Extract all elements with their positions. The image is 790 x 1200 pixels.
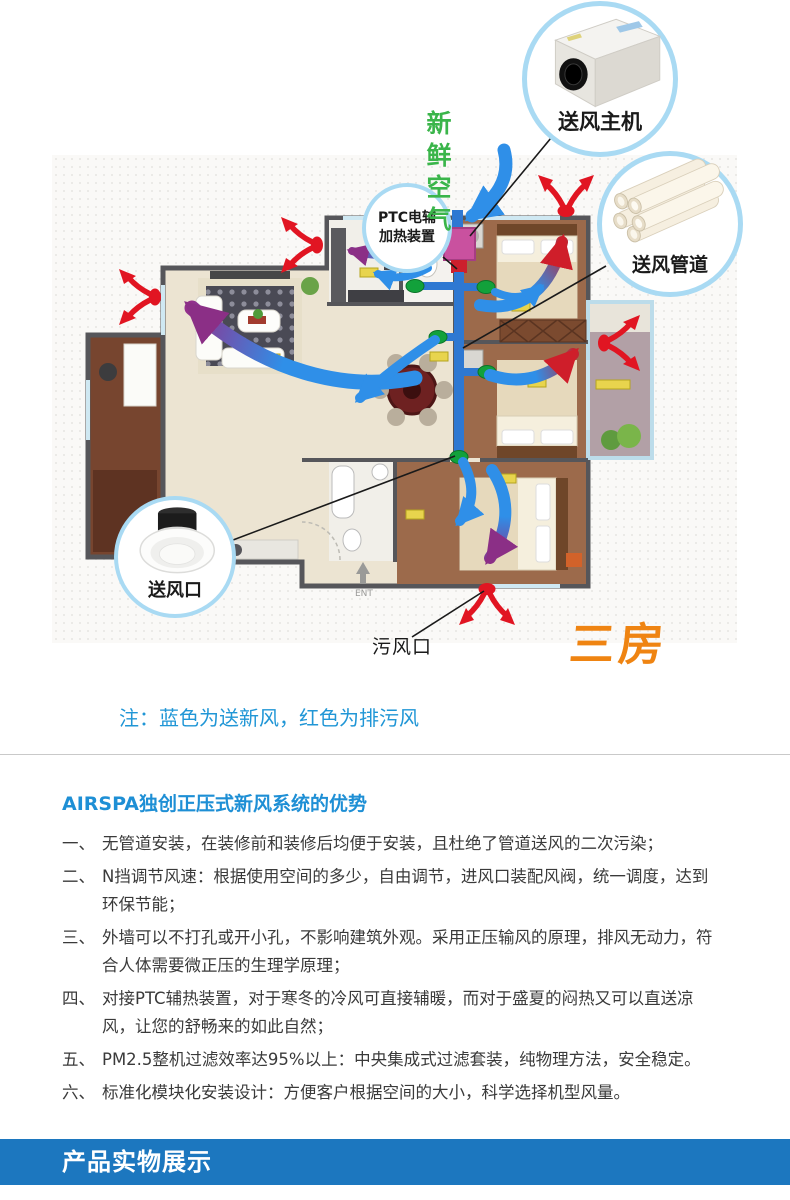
advantage-item: 一、 无管道安装，在装修前和装修后均便于安装，且杜绝了管道送风的二次污染； bbox=[62, 830, 716, 858]
main-unit-image bbox=[527, 6, 673, 120]
callout-main-unit: 送风主机 bbox=[522, 1, 678, 157]
advantage-item: 五、 PM2.5整机过滤效率达95%以上：中央集成式过滤套装，纯物理方法，安全稳… bbox=[62, 1046, 716, 1074]
main-unit-label: 送风主机 bbox=[527, 106, 673, 136]
dirty-outlet-label: 污风口 bbox=[372, 632, 432, 659]
color-legend-note: 注：蓝色为送新风，红色为排污风 bbox=[119, 702, 419, 731]
duct-pipes-image bbox=[602, 156, 738, 262]
section-banner: 产品实物展示 bbox=[0, 1139, 790, 1185]
advantage-item: 四、 对接PTC辅热装置，对于寒冬的冷风可直接辅暖，而对于盛夏的闷热又可以直送凉… bbox=[62, 985, 716, 1041]
advantage-item: 二、 N挡调节风速：根据使用空间的多少，自由调节，进风口装配风阀，统一调度，达到… bbox=[62, 863, 716, 919]
callout-outlet: 送风口 bbox=[114, 496, 236, 618]
fresh-air-label: 新鲜空气 bbox=[421, 110, 453, 260]
advantages-section: AIRSPA独创正压式新风系统的优势 一、 无管道安装，在装修前和装修后均便于安… bbox=[0, 755, 790, 1112]
advantage-item: 六、 标准化模块化安装设计：方便客户根据空间的大小，科学选择机型风量。 bbox=[62, 1079, 716, 1107]
three-rooms-tag: 三房 bbox=[567, 608, 671, 673]
banner-title: 产品实物展示 bbox=[62, 1139, 212, 1185]
entrance-label: ENT bbox=[355, 589, 373, 599]
advantages-title: AIRSPA独创正压式新风系统的优势 bbox=[62, 789, 716, 816]
ventilation-diagram: ENT bbox=[0, 0, 790, 754]
outlet-label: 送风口 bbox=[118, 576, 232, 602]
duct-label: 送风管道 bbox=[602, 250, 738, 277]
advantage-item: 三、 外墙可以不打孔或开小孔，不影响建筑外观。采用正压输风的原理，排风无动力，符… bbox=[62, 924, 716, 980]
callout-duct: 送风管道 bbox=[597, 151, 743, 297]
